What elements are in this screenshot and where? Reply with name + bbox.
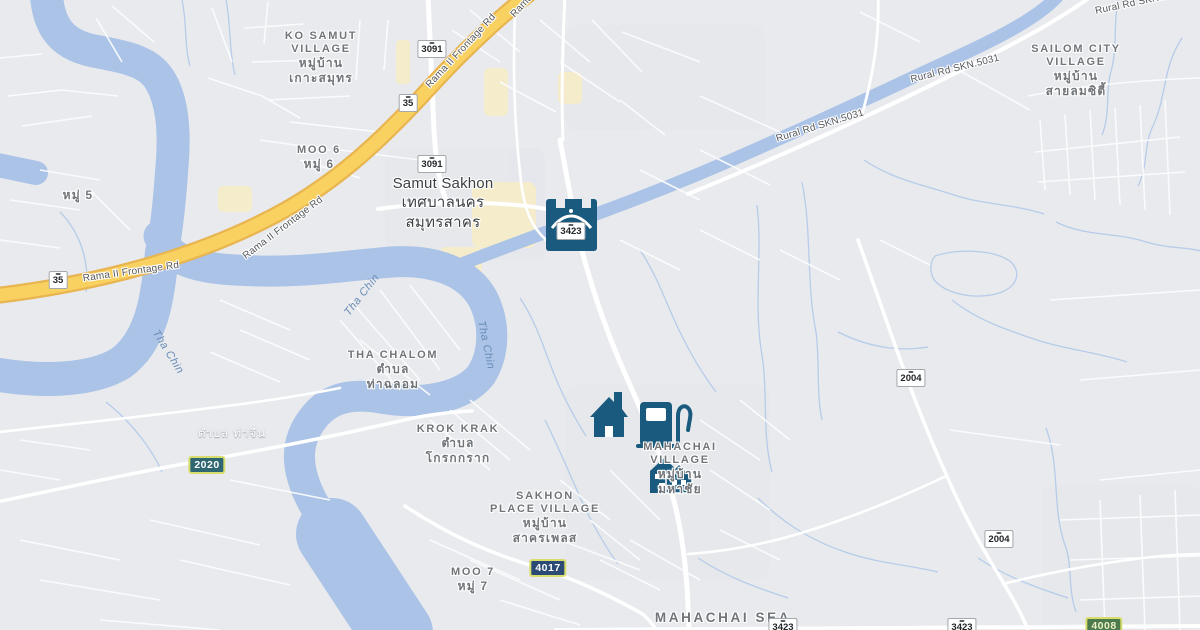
map-graphics	[0, 0, 1200, 630]
map-canvas[interactable]: KO SAMUTVILLAGEหมู่บ้านเกาะสมุทรMOO 6หมู…	[0, 0, 1200, 630]
bridge-icon[interactable]	[546, 198, 597, 251]
